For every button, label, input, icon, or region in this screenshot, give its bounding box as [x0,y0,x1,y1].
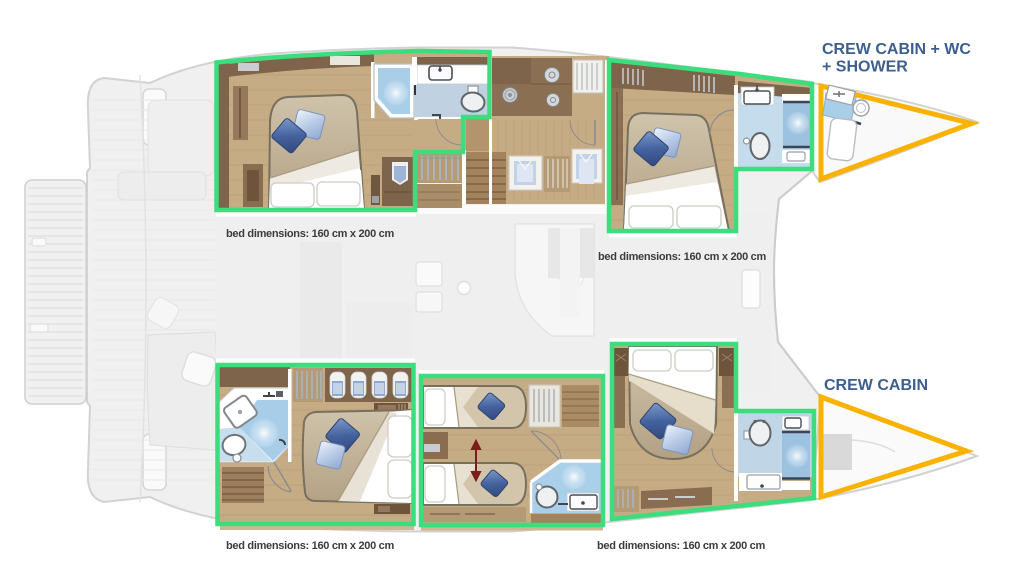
svg-text:CREW CABIN + WC: CREW CABIN + WC [822,41,971,58]
svg-text:CREW CABIN: CREW CABIN [824,377,928,394]
svg-text:bed dimensions: 160 cm x 200 c: bed dimensions: 160 cm x 200 cm [598,251,767,263]
svg-text:bed dimensions: 160 cm x 200 c: bed dimensions: 160 cm x 200 cm [226,228,395,240]
svg-text:+ SHOWER: + SHOWER [822,59,908,76]
svg-text:bed dimensions: 160 cm x 200 c: bed dimensions: 160 cm x 200 cm [226,540,395,552]
svg-text:bed dimensions: 160 cm x 200 c: bed dimensions: 160 cm x 200 cm [597,540,766,552]
